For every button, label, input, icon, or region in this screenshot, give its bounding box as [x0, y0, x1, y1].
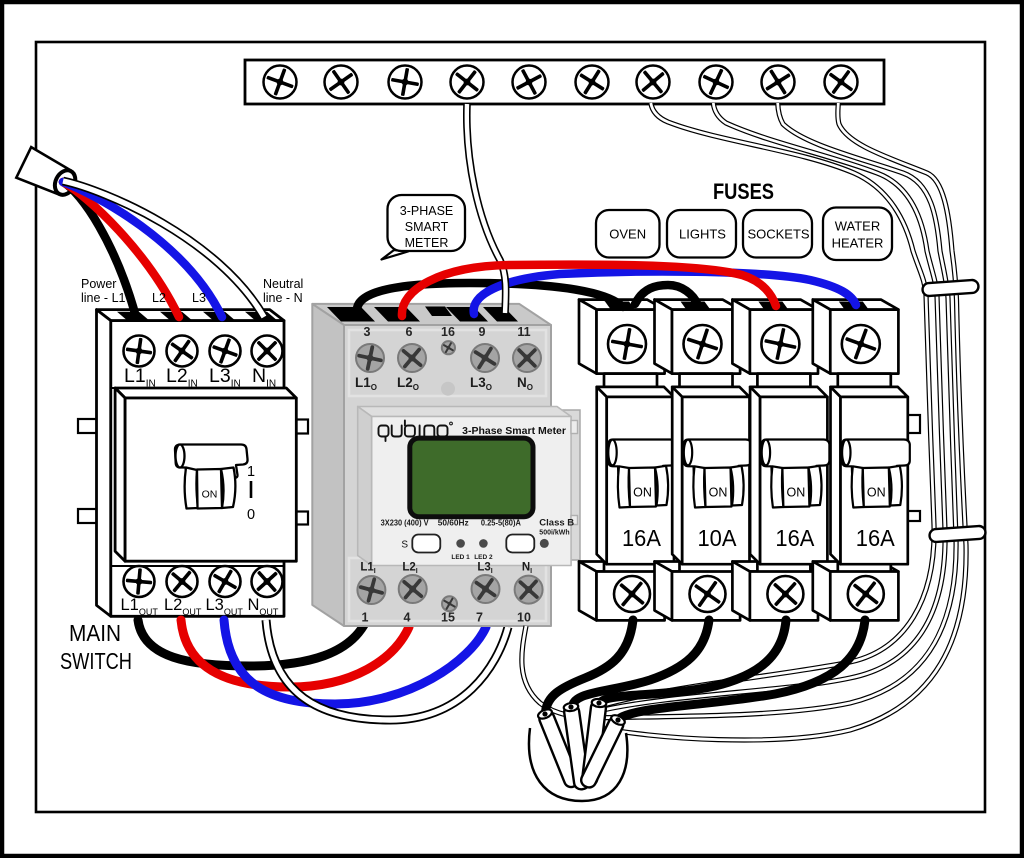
- svg-text:FUSES: FUSES: [713, 179, 774, 204]
- svg-text:ON: ON: [787, 486, 806, 500]
- svg-text:L3I: L3I: [477, 562, 492, 576]
- svg-text:16A: 16A: [622, 525, 662, 551]
- svg-text:line - L1: line - L1: [81, 291, 126, 305]
- svg-text:3: 3: [364, 325, 371, 339]
- svg-text:ON: ON: [202, 489, 218, 501]
- svg-text:10: 10: [517, 611, 531, 625]
- svg-text:16A: 16A: [856, 525, 896, 551]
- svg-text:L3: L3: [192, 291, 206, 305]
- svg-text:WATER: WATER: [835, 219, 881, 234]
- svg-text:SWITCH: SWITCH: [60, 648, 132, 674]
- svg-text:9: 9: [479, 325, 486, 339]
- svg-text:ON: ON: [709, 486, 728, 500]
- svg-text:ON: ON: [867, 486, 886, 500]
- svg-text:500i/kWh: 500i/kWh: [539, 530, 569, 537]
- svg-text:10A: 10A: [698, 525, 738, 551]
- svg-text:11: 11: [517, 325, 530, 339]
- svg-text:SOCKETS: SOCKETS: [747, 227, 809, 242]
- svg-text:16: 16: [441, 325, 455, 339]
- svg-text:0: 0: [247, 507, 255, 523]
- svg-text:line - N: line - N: [263, 291, 303, 305]
- svg-text:S: S: [401, 540, 408, 551]
- svg-text:3-PHASE: 3-PHASE: [400, 204, 454, 218]
- svg-text:METER: METER: [405, 236, 449, 250]
- svg-text:1: 1: [247, 464, 255, 480]
- svg-text:Power: Power: [81, 277, 116, 291]
- svg-text:1: 1: [362, 611, 369, 625]
- svg-text:L2: L2: [152, 291, 166, 305]
- svg-text:16A: 16A: [775, 525, 815, 551]
- svg-text:HEATER: HEATER: [832, 236, 884, 251]
- svg-text:ON: ON: [633, 486, 652, 500]
- svg-text:L2I: L2I: [402, 562, 417, 576]
- svg-text:Neutral: Neutral: [263, 277, 303, 291]
- svg-text:0.25-5(80)A: 0.25-5(80)A: [481, 518, 521, 528]
- svg-text:LED 1: LED 1: [451, 554, 470, 561]
- svg-text:OVEN: OVEN: [609, 227, 646, 242]
- svg-text:6: 6: [406, 325, 413, 339]
- svg-text:LIGHTS: LIGHTS: [679, 227, 726, 242]
- svg-text:4: 4: [404, 611, 411, 625]
- svg-text:3-Phase Smart Meter: 3-Phase Smart Meter: [462, 425, 566, 437]
- svg-text:SMART: SMART: [405, 220, 449, 234]
- svg-text:LED 2: LED 2: [474, 554, 493, 561]
- svg-text:3X230 (400) V: 3X230 (400) V: [381, 518, 429, 528]
- svg-text:7: 7: [476, 611, 483, 625]
- svg-text:15: 15: [441, 611, 455, 625]
- svg-text:MAIN: MAIN: [69, 620, 121, 646]
- svg-text:50/60Hz: 50/60Hz: [438, 518, 469, 528]
- svg-text:Class B: Class B: [539, 518, 574, 529]
- svg-text:L1I: L1I: [360, 562, 375, 576]
